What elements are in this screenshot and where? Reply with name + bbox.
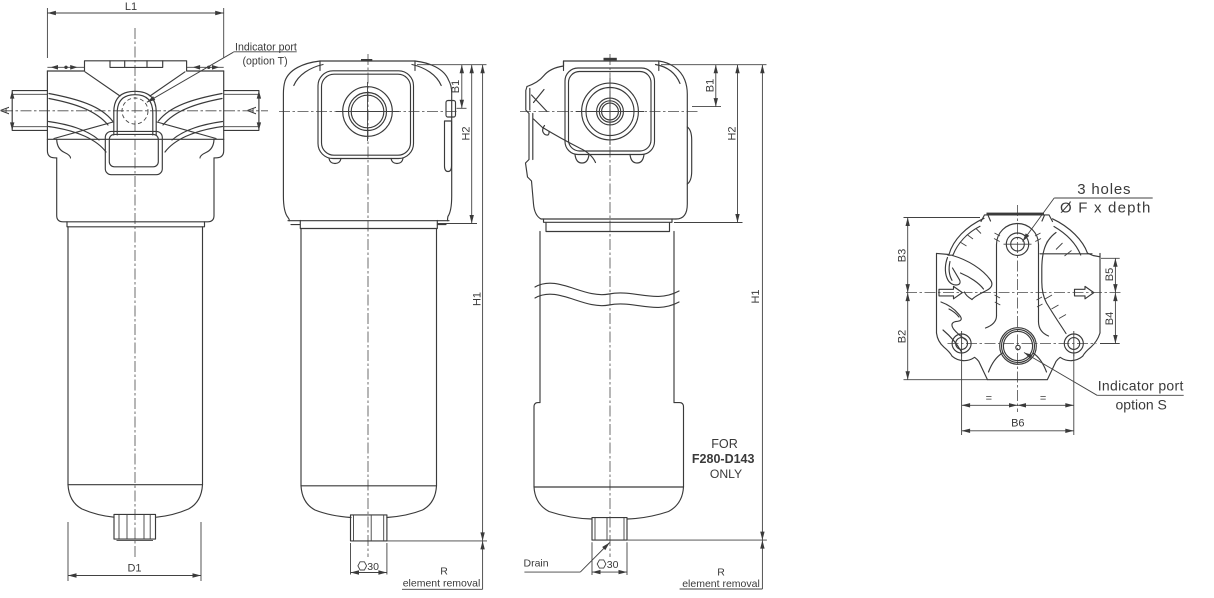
svg-text:B6: B6 [1011, 417, 1024, 429]
svg-text:=: = [986, 392, 992, 404]
svg-text:A: A [0, 106, 12, 114]
svg-text:B3: B3 [896, 249, 908, 262]
svg-text:A: A [247, 106, 259, 114]
svg-text:H2: H2 [726, 126, 738, 140]
svg-text:3 holes: 3 holes [1077, 181, 1131, 198]
svg-text:B5: B5 [1104, 268, 1116, 281]
svg-text:option S: option S [1116, 396, 1167, 412]
svg-text:R: R [440, 566, 448, 578]
svg-text:D1: D1 [127, 563, 141, 575]
svg-text:ONLY: ONLY [710, 467, 742, 481]
svg-text:element removal: element removal [682, 578, 760, 590]
svg-text:H2: H2 [461, 126, 473, 140]
svg-text:B4: B4 [1104, 312, 1116, 325]
svg-text:Indicator port: Indicator port [235, 42, 297, 54]
svg-text:R: R [717, 567, 725, 579]
svg-text:30: 30 [607, 559, 619, 571]
svg-text:30: 30 [367, 561, 379, 573]
svg-text:Drain: Drain [524, 558, 549, 570]
svg-text:FOR: FOR [711, 437, 738, 451]
svg-text:Indicator port: Indicator port [1098, 377, 1184, 393]
svg-text:H1: H1 [750, 289, 762, 303]
svg-text:(option T): (option T) [243, 55, 288, 67]
svg-text:H1: H1 [472, 292, 484, 306]
svg-text:F280-D143: F280-D143 [692, 452, 755, 466]
svg-text:Ø F x depth: Ø F x depth [1060, 200, 1152, 217]
svg-text:L1: L1 [125, 1, 137, 13]
svg-text:element removal: element removal [403, 578, 481, 590]
svg-text:B1: B1 [704, 79, 716, 92]
svg-text:=: = [1040, 392, 1046, 404]
svg-text:B2: B2 [896, 330, 908, 343]
svg-text:B1: B1 [450, 80, 462, 93]
